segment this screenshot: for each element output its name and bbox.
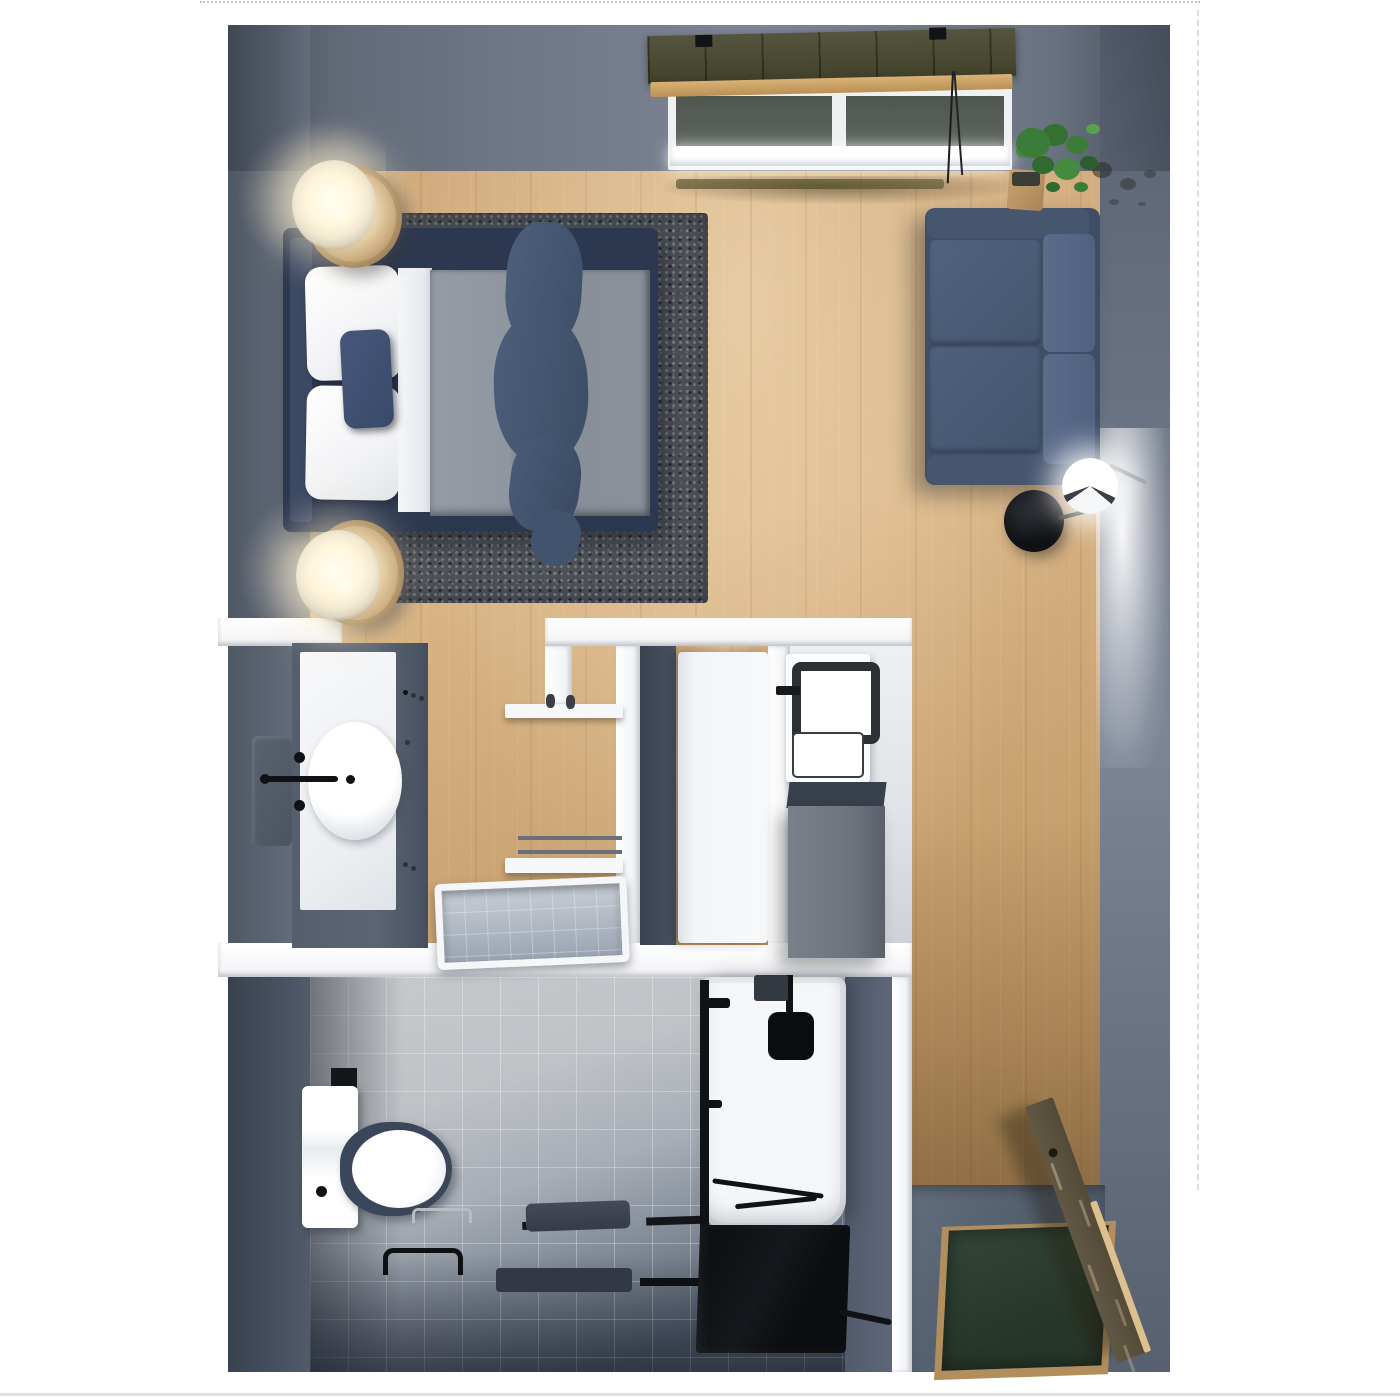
shower-head[interactable] [768,1012,814,1060]
shelf-rail [518,836,622,840]
bathtub[interactable] [434,876,630,970]
shower-mixer-box [754,975,788,1001]
plant-soil [1012,172,1040,186]
towel[interactable] [526,1200,631,1232]
window-ledge-reflection [676,179,944,189]
cabinet-front [788,806,885,958]
pipe-stub [700,1100,722,1108]
washer-handle [776,686,800,695]
washing-machine[interactable] [786,654,870,782]
wood-floor-shading [880,820,1100,1190]
closet-door[interactable] [678,652,768,943]
throw-blanket[interactable] [494,222,590,566]
toilet-bowl [352,1130,446,1208]
pipe-stub [700,998,730,1008]
wall-shelf-lower[interactable] [505,858,623,873]
grab-bar[interactable] [383,1248,463,1275]
blind-bracket [695,35,712,47]
wall-bedroom-vanity [218,618,342,646]
closet-wall-face [640,646,676,945]
towel-rail-small [412,1208,472,1223]
sink-drain [346,775,355,784]
floor-lamp[interactable] [1004,490,1064,552]
sofa-seat-cushion [929,347,1041,453]
floor-plan-render [0,0,1400,1400]
sofa-back-cushion [1043,234,1095,352]
table-lamp-bottom[interactable] [296,530,380,622]
table-lamp-top[interactable] [292,160,376,250]
sofa-seat-cushion [929,240,1041,345]
door-groove [1050,1163,1062,1190]
faucet[interactable] [262,776,338,782]
storage-cabinet[interactable] [788,782,885,958]
shower-glass-panel[interactable] [696,1225,850,1353]
faucet-base [260,774,270,784]
shelf-hook [546,694,555,708]
cabinet-handle-dots [403,690,408,695]
mirror[interactable] [252,736,292,846]
wall-bathroom-entry [892,977,912,1372]
sofa-back-cushion [1043,354,1095,464]
toilet[interactable] [300,1064,456,1226]
wall-closet-top [545,618,912,646]
window-blinds[interactable] [647,28,1017,108]
top-dotted-edge [200,1,1200,3]
bed-sheet-fold [398,268,432,512]
loveseat-sofa[interactable] [925,208,1100,485]
wall-shelf-upper[interactable] [505,704,623,718]
wall-sconce[interactable] [1062,458,1118,514]
toilet-flush-button [316,1186,327,1197]
blind-bracket [929,27,946,39]
washer-drawer [792,732,864,778]
faucet-handle [294,752,305,763]
accent-pillow [339,329,394,429]
bathroom-left-wall [228,977,310,1372]
bath-mat[interactable] [496,1268,632,1292]
cabinet-top-face [786,782,886,808]
potted-plant[interactable] [982,112,1098,218]
plant-leaves [1016,128,1050,158]
door-knob [1047,1147,1059,1159]
right-dotted-edge [1197,10,1199,1190]
bottom-divider [0,1393,1400,1396]
